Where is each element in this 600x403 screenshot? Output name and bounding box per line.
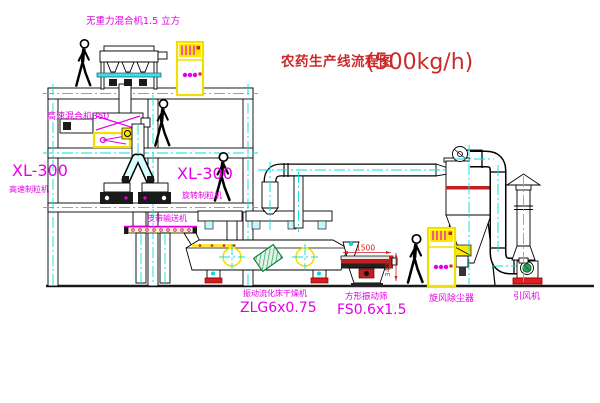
granulator-left-drawing xyxy=(100,176,133,204)
label-dryer-model: ZLG6x0.75 xyxy=(240,300,317,316)
label-cyclone: 旋风除尘器 xyxy=(429,292,474,304)
control-cabinet-2 xyxy=(428,228,455,286)
induced-draft-fan-drawing xyxy=(513,261,542,284)
label-high-speed-mixer: 高速混合机350 xyxy=(47,110,109,122)
cad-drawing-canvas: 1500 340 农药生产线流程图 (500kg/h) 无重力混合机1.5 立方… xyxy=(0,0,600,403)
label-dryer-name: 振动流化床干燥机 xyxy=(243,288,307,298)
label-screen-model: FS0.6x1.5 xyxy=(337,302,407,318)
drawing-capacity: (500kg/h) xyxy=(366,50,473,75)
worker-figure-4 xyxy=(408,235,423,283)
label-gravity-free-mixer: 无重力混合机1.5 立方 xyxy=(86,15,180,27)
label-belt-conveyor: 皮带输送机 xyxy=(147,213,187,223)
label-granulator-left-name: 高速制粒机 xyxy=(9,184,49,194)
label-granulator-right-name: 旋转制粒机 xyxy=(182,190,222,200)
label-granulator-right-model: XL-300 xyxy=(177,164,233,183)
control-cabinet-1 xyxy=(177,42,203,95)
worker-figure-1 xyxy=(76,40,90,86)
label-screen-name: 方形振动筛 xyxy=(345,291,388,302)
dim-screen-height: 340 xyxy=(384,263,392,276)
y-chute-drawing xyxy=(126,158,150,180)
dim-screen-length: 1500 xyxy=(356,244,375,253)
exhaust-duct-drawing xyxy=(258,162,448,232)
label-fan: 引风机 xyxy=(513,290,540,302)
fluid-bed-dryer-drawing xyxy=(186,211,347,283)
label-granulator-left-model: XL-300 xyxy=(12,161,68,180)
process-flow-diagram: 1500 340 农药生产线流程图 (500kg/h) 无重力混合机1.5 立方… xyxy=(0,0,600,403)
